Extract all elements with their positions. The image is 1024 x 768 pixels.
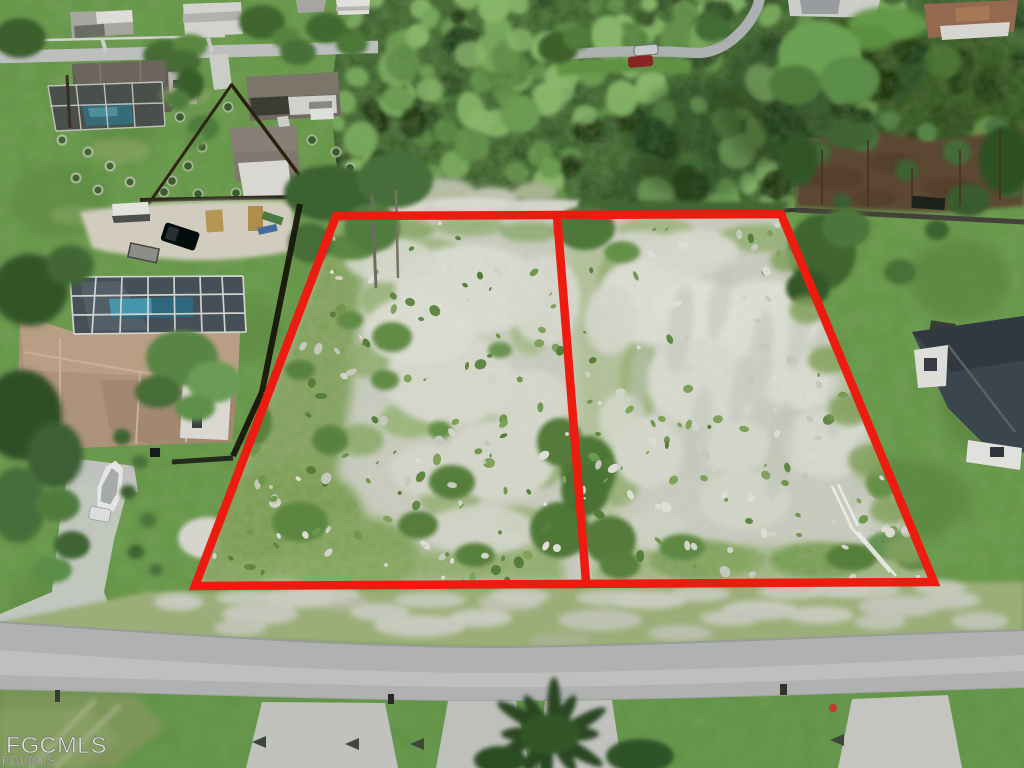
svg-text:FGCMLS: FGCMLS bbox=[2, 754, 56, 768]
